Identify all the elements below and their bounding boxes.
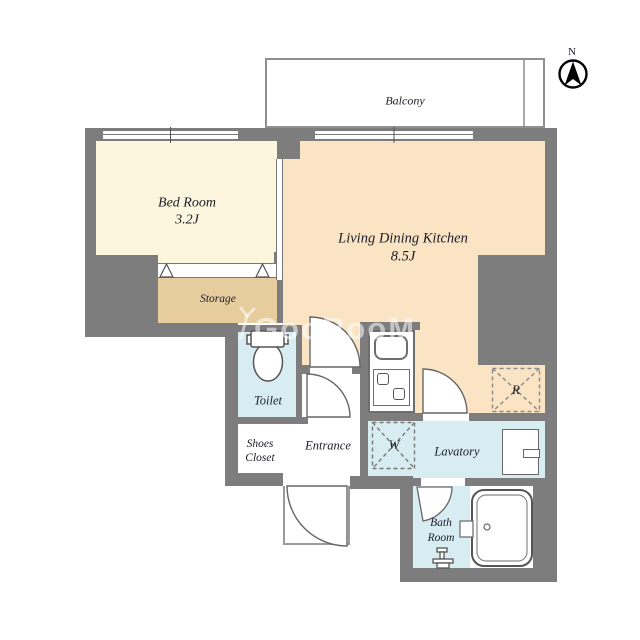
bathroom-label-line2: Room [428,532,455,544]
shoes-closet-label-line2: Closet [245,452,274,464]
door-arc-bathroom [417,487,452,521]
door-arc-ldk-lavatory [423,369,467,413]
north-label: N [568,47,576,59]
bedroom-label: Bed Room [158,197,216,212]
bathroom-label-line1: Bath [430,517,452,529]
door-arc-entrance [287,486,347,546]
storage-label: Storage [200,293,236,305]
ldk-label: Living Dining Kitchen [338,231,468,246]
window-tick [171,127,395,143]
watermark-text: GooRooM [254,311,416,347]
north-compass-icon [560,61,587,88]
toilet-label: Toilet [254,394,282,407]
floor-plan: Balcony Bed Room 3.2J Living Dining Kitc… [0,0,640,640]
bathtub-icon [460,490,532,566]
entrance-label: Entrance [305,439,351,452]
folding-door-marks [160,264,269,277]
balcony-label: Balcony [385,95,424,108]
refrigerator-label: R [512,383,520,397]
washing-machine-label: W [389,438,400,452]
door-arc-hall-toilet [307,374,350,417]
bath-tap-icon [433,548,453,568]
lavatory-label: Lavatory [434,445,479,458]
bedroom-size-label: 3.2J [175,214,199,229]
shoes-closet-label-line1: Shoes [247,438,274,450]
ldk-size-label: 8.5J [391,249,416,264]
